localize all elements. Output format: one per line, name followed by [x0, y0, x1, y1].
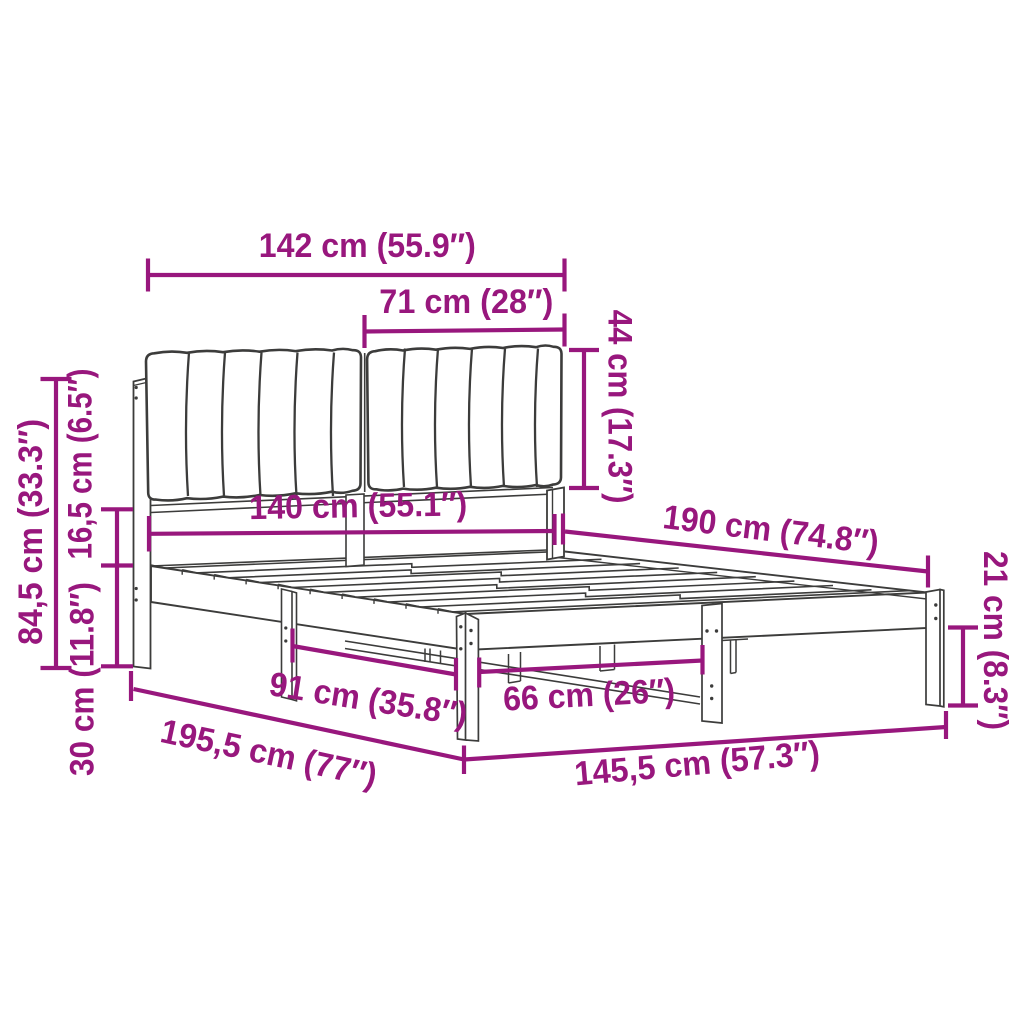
svg-text:44 cm (17.3″): 44 cm (17.3″)	[600, 310, 638, 504]
svg-text:142 cm (55.9″): 142 cm (55.9″)	[259, 227, 476, 265]
svg-text:30 cm (11.8″): 30 cm (11.8″)	[64, 582, 102, 776]
svg-text:21 cm (8.3″): 21 cm (8.3″)	[976, 551, 1014, 730]
svg-text:71 cm (28″): 71 cm (28″)	[379, 283, 553, 321]
svg-text:84,5 cm (33.3″): 84,5 cm (33.3″)	[12, 419, 50, 645]
svg-text:140 cm (55.1″): 140 cm (55.1″)	[249, 485, 468, 527]
svg-text:16,5 cm (6.5″): 16,5 cm (6.5″)	[62, 369, 100, 560]
